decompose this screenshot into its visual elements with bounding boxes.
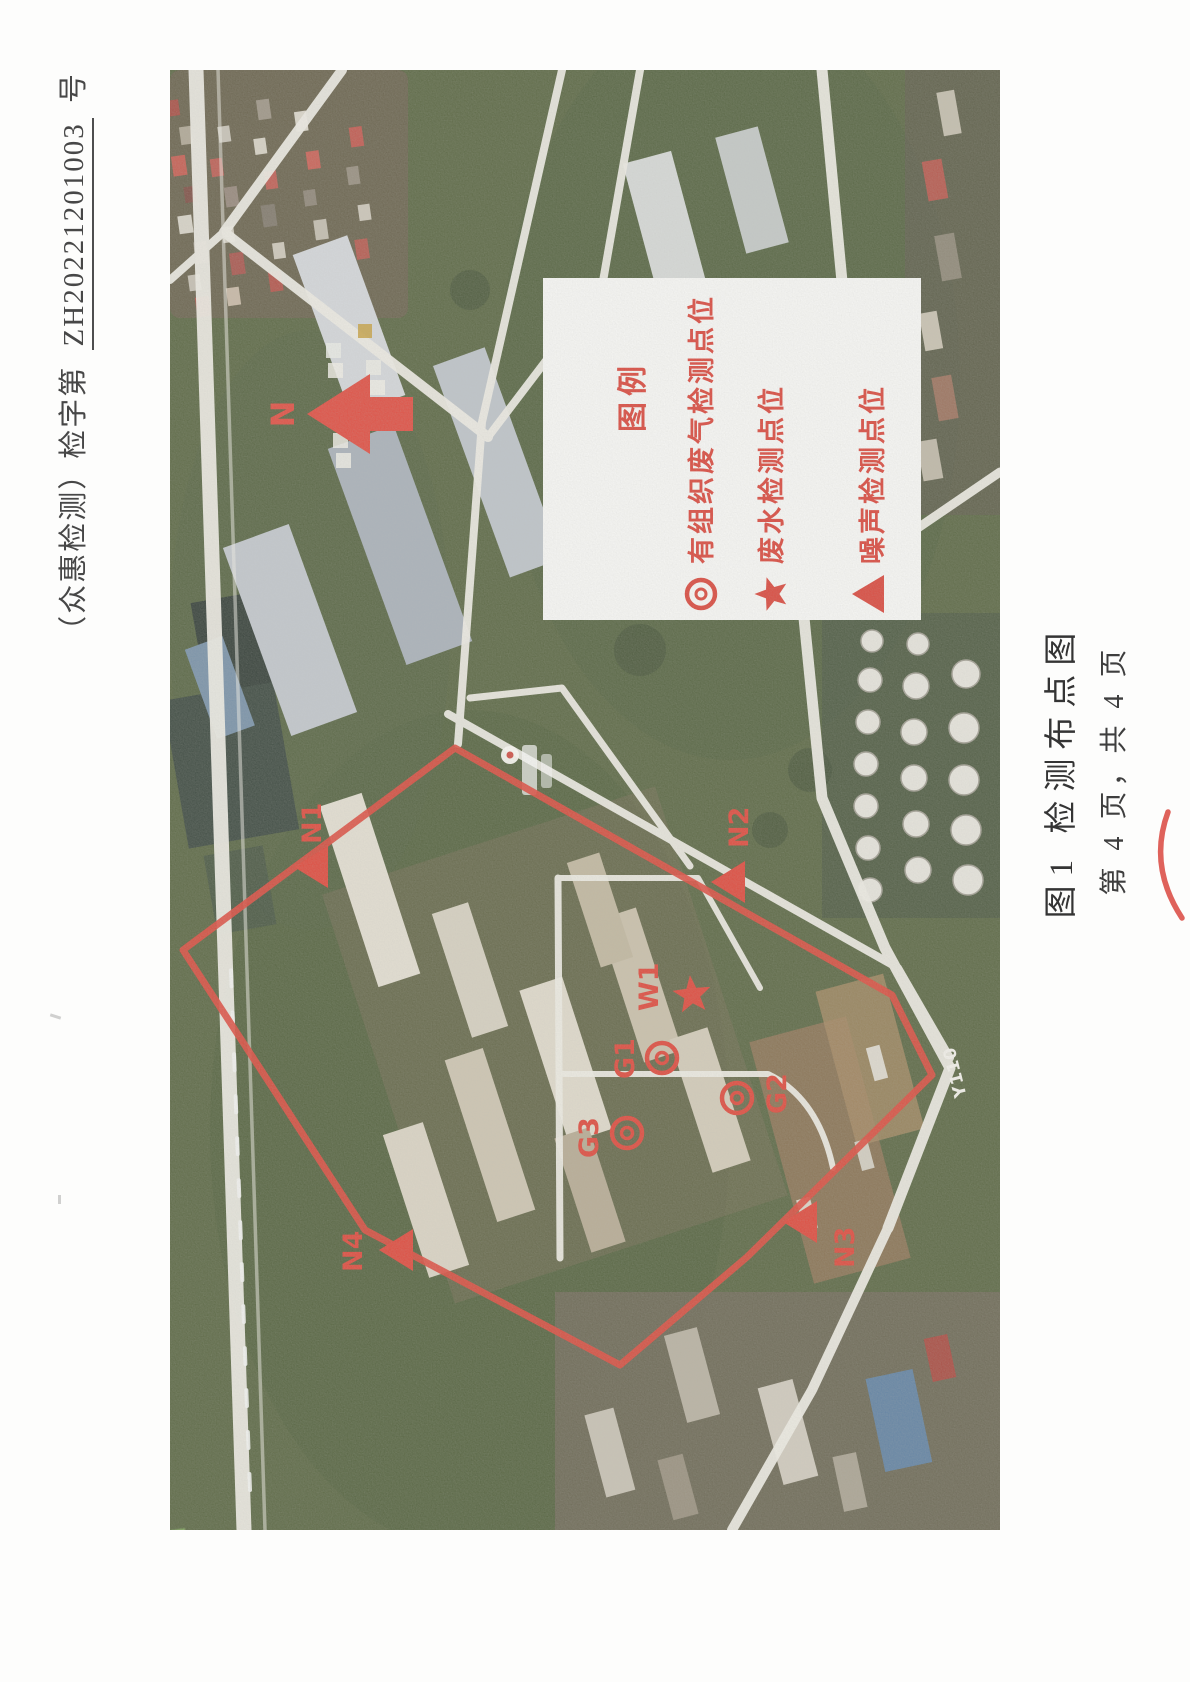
rotated-content: （众惠检测）检字第 ZH20221201003 号 [0,0,1190,1682]
scan-artifact [50,1013,61,1019]
header-report-number: ZH20221201003 [58,118,94,350]
scan-noise-overlay [170,70,1000,1530]
scanned-report-page: （众惠检测）检字第 ZH20221201003 号 [0,0,1190,1682]
page-number: 第 4 页，共 4 页 [1092,0,1132,1682]
figure-caption: 图1 检测布点图 [1034,0,1082,1682]
report-number-header: （众惠检测）检字第 ZH20221201003 号 [50,72,92,645]
site-map-figure: N N1 N2 N3 [170,70,1000,1530]
red-check-mark [1144,804,1190,924]
satellite-map: N N1 N2 N3 [170,70,1000,1530]
scan-artifact [58,1195,61,1204]
header-prefix: （众惠检测）检字第 [58,366,90,645]
header-suffix: 号 [58,72,90,103]
